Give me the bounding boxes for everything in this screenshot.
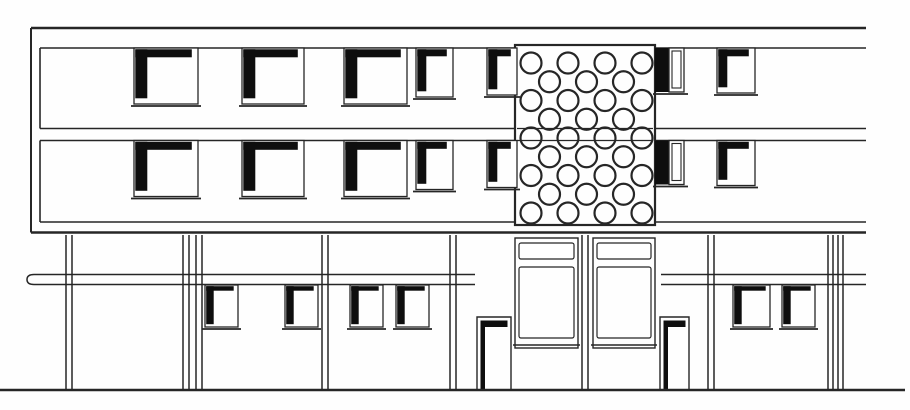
facade-window <box>714 48 758 95</box>
window-left-shadow <box>206 286 214 324</box>
window-left-shadow <box>718 49 727 87</box>
window-left-shadow <box>783 286 791 324</box>
facade-window <box>653 48 688 94</box>
door-left-shadow <box>481 321 486 390</box>
pilotis-columns <box>66 235 843 390</box>
window-left-shadow <box>286 286 294 324</box>
facade-window <box>484 48 520 97</box>
window-left-shadow <box>345 142 357 191</box>
lower-window <box>730 285 773 329</box>
window-left-shadow <box>243 142 255 191</box>
entry-door <box>660 317 689 390</box>
lower-window <box>393 285 432 329</box>
facade-window <box>131 141 201 199</box>
facade-window <box>714 141 758 188</box>
window-dark-reveal <box>655 141 669 185</box>
lower-window <box>202 285 241 329</box>
glazed-panel <box>513 238 580 348</box>
canopy-rounded-cap <box>27 275 34 285</box>
lower-window <box>347 285 386 329</box>
facade-window <box>484 141 520 190</box>
canopy-band <box>27 275 475 285</box>
door-left-shadow <box>664 321 669 390</box>
lower-window <box>282 285 321 329</box>
facade-window <box>131 48 201 106</box>
window-left-shadow <box>135 142 147 191</box>
window-left-shadow <box>135 49 147 98</box>
window-left-shadow <box>734 286 742 324</box>
facade-window <box>341 141 410 199</box>
facade-window <box>341 48 410 106</box>
window-left-shadow <box>397 286 405 324</box>
window-left-shadow <box>718 142 727 180</box>
window-frame <box>669 141 684 185</box>
elevation-svg <box>0 0 910 410</box>
window-left-shadow <box>488 142 497 182</box>
entry-door <box>477 317 511 390</box>
window-left-shadow <box>351 286 359 324</box>
lower-window <box>779 285 818 329</box>
window-left-shadow <box>243 49 255 98</box>
facade-window <box>239 141 307 199</box>
facade-window <box>653 141 688 187</box>
facade-window <box>413 141 456 192</box>
glazed-panel-frame <box>593 238 655 348</box>
window-left-shadow <box>345 49 357 98</box>
elevation-drawing <box>0 0 910 410</box>
facade-window <box>413 48 456 99</box>
glazed-panel <box>591 238 657 348</box>
window-frame <box>669 48 684 92</box>
facade-window <box>239 48 307 106</box>
canopy-band <box>661 275 866 285</box>
window-left-shadow <box>488 49 497 89</box>
glazed-panel-frame <box>515 238 578 348</box>
window-left-shadow <box>417 142 426 184</box>
window-left-shadow <box>417 49 426 91</box>
window-dark-reveal <box>655 48 669 92</box>
perforated-screen-panel <box>515 45 655 225</box>
